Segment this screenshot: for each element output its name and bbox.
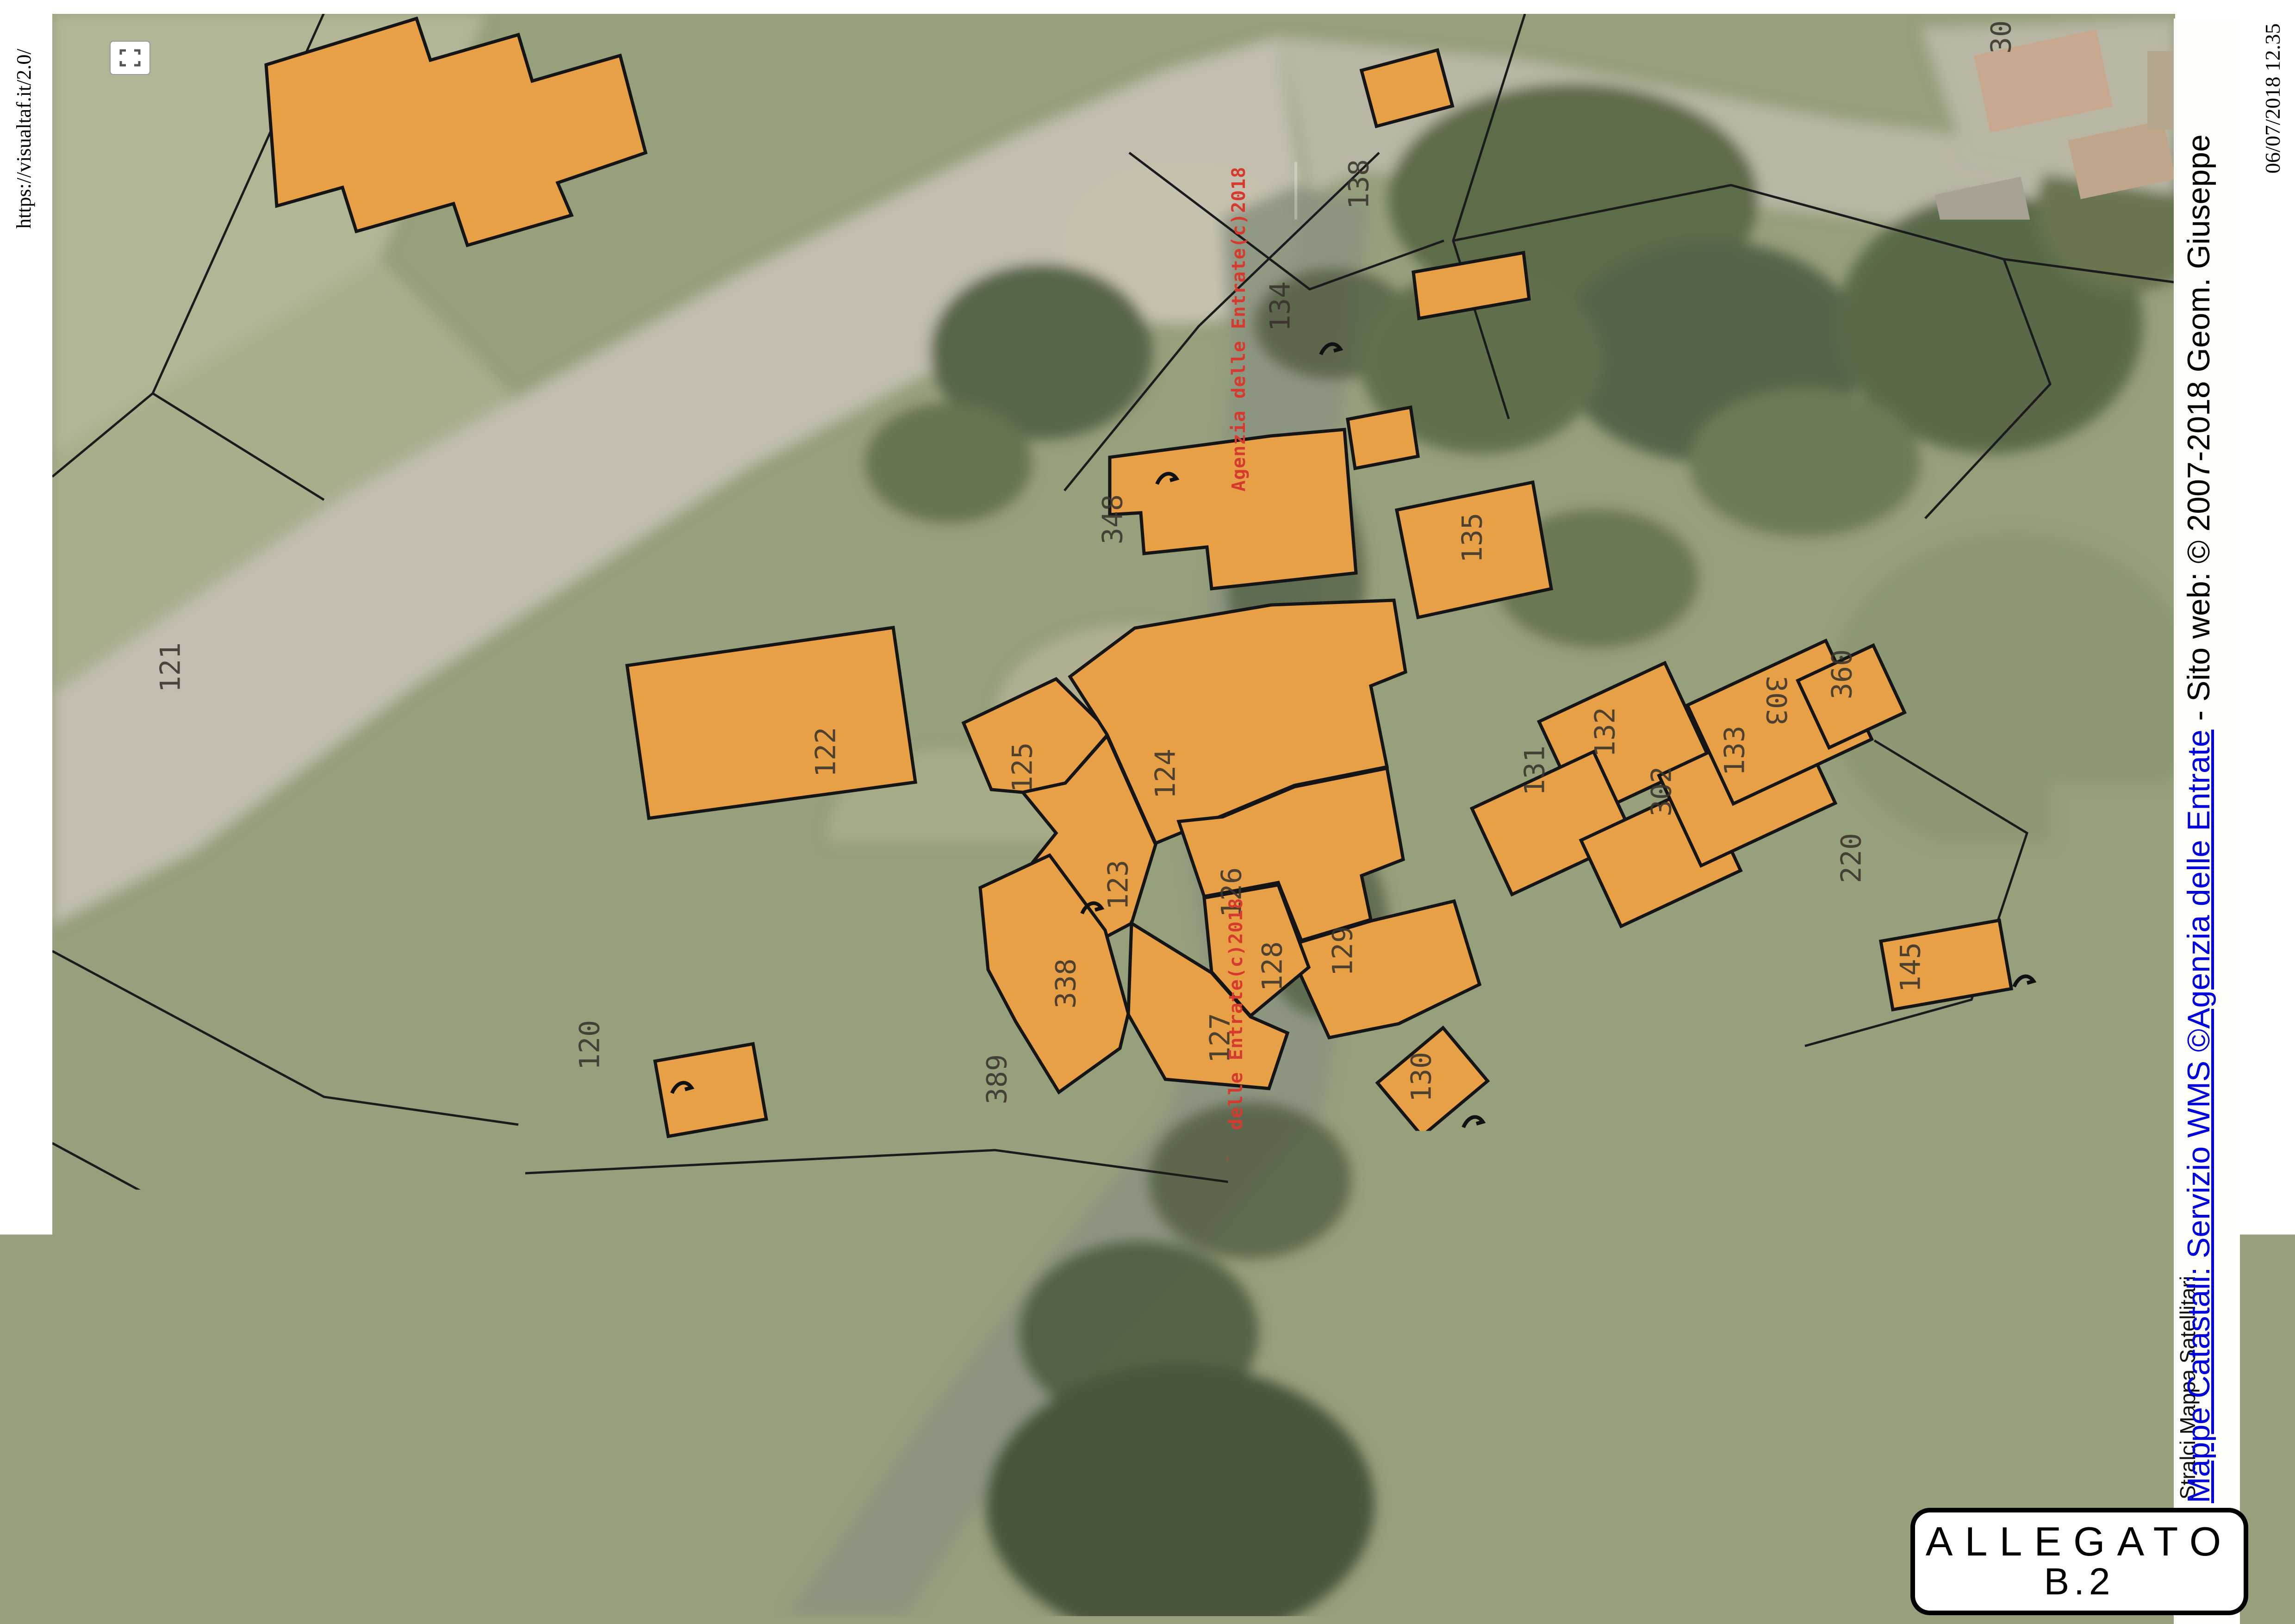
parcel-label-220: 220	[1835, 833, 1868, 883]
parcel-label-124: 124	[1150, 749, 1182, 799]
satellite-map: 1211223481341381351251241231261291281273…	[0, 0, 2295, 1624]
parcel-label-131: 131	[1519, 746, 1551, 796]
parcel-label-130: 130	[1406, 1052, 1438, 1102]
page-number: 1 di 2	[2261, 1574, 2285, 1621]
parcel-label-338: 338	[1050, 958, 1082, 1008]
parcel-label-133: 133	[1719, 726, 1751, 776]
parcel-label-304: 304	[1797, 1348, 1829, 1398]
parcel-label-121: 121	[155, 642, 187, 692]
parcel-label-122: 122	[810, 727, 842, 777]
parcel-label-138: 138	[1343, 159, 1375, 209]
map-attribution: Mappe Catastali: Servizio WMS ©Agenzia d…	[2181, 134, 2217, 1503]
parcel-label-129: 129	[1327, 926, 1359, 976]
parcel-label-302: 302	[1646, 766, 1678, 816]
parcel-label-145: 145	[1895, 942, 1927, 992]
parcel-label-135: 135	[1456, 513, 1489, 563]
attribution-link[interactable]: Mappe Catastali: Servizio WMS ©Agenzia d…	[2181, 729, 2216, 1503]
browser-print-title: VisualTAF 2.0 | Ricerca PF	[6, 1392, 30, 1615]
browser-print-url: https://visualtaf.it/2.0/	[12, 49, 36, 229]
parcel-label-360: 360	[1826, 649, 1859, 699]
allegato-badge: ALLEGATO B.2	[1910, 1508, 2248, 1615]
printed-page: 1211223481341381351251241231261291281273…	[0, 0, 2295, 1624]
fullscreen-expand-icon	[119, 49, 141, 67]
browser-print-datetime: 06/07/2018 12.35	[2260, 23, 2285, 174]
parcel-label-125: 125	[1007, 742, 1039, 792]
attribution-suffix: - Sito web: © 2007-2018 Geom. Giuseppe	[2181, 134, 2216, 729]
allegato-title: ALLEGATO	[1926, 1521, 2233, 1562]
parcel-label-128: 128	[1256, 941, 1289, 991]
parcel-label-132: 132	[1589, 707, 1622, 757]
allegato-number: B.2	[2044, 1562, 2115, 1602]
fullscreen-button[interactable]	[110, 41, 150, 75]
copyright-watermark-2: Agenzia delle Entrate(c)2018	[1225, 898, 1247, 1223]
parcel-label-117: 117	[863, 1225, 895, 1275]
parcel-label-389: 389	[981, 1054, 1014, 1104]
parcel-label-134: 134	[1264, 281, 1297, 331]
parcel-label-120: 120	[574, 1020, 606, 1070]
parcel-label-387: 387	[231, 1335, 263, 1385]
parcel-label-123: 123	[1102, 860, 1135, 910]
copyright-watermark-1: Agenzia delle Entrate(c)2018	[1228, 167, 1250, 492]
parcel-label-116: 116	[392, 1340, 425, 1390]
parcel-label-30: 30	[1985, 20, 2018, 54]
parcel-label-303: 303	[1760, 676, 1792, 726]
parcel-label-348: 348	[1097, 494, 1129, 544]
